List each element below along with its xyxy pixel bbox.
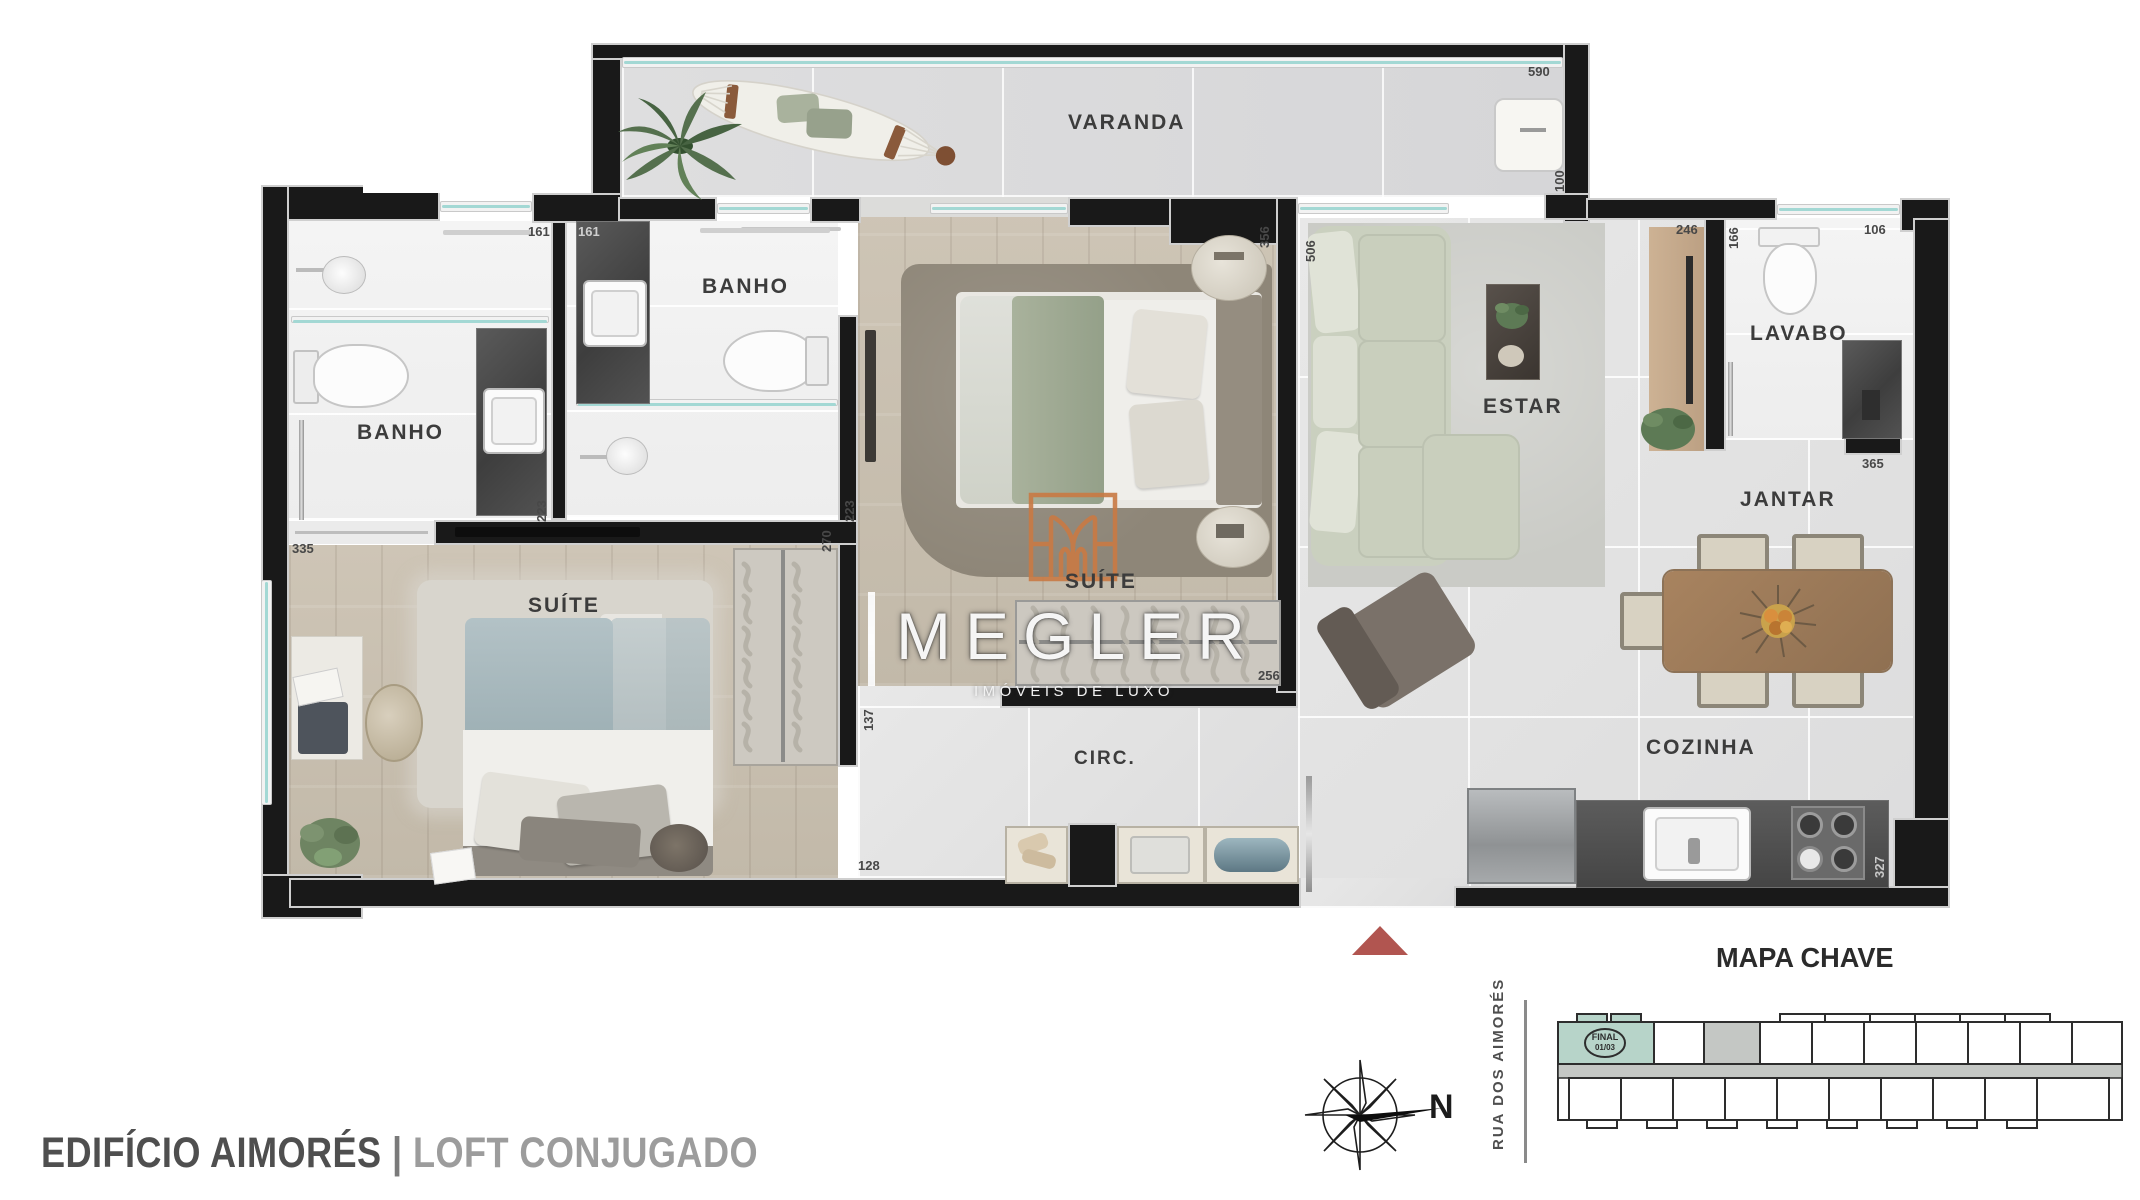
- svg-text:FINAL: FINAL: [1592, 1032, 1619, 1042]
- svg-text:01/03: 01/03: [1595, 1043, 1616, 1052]
